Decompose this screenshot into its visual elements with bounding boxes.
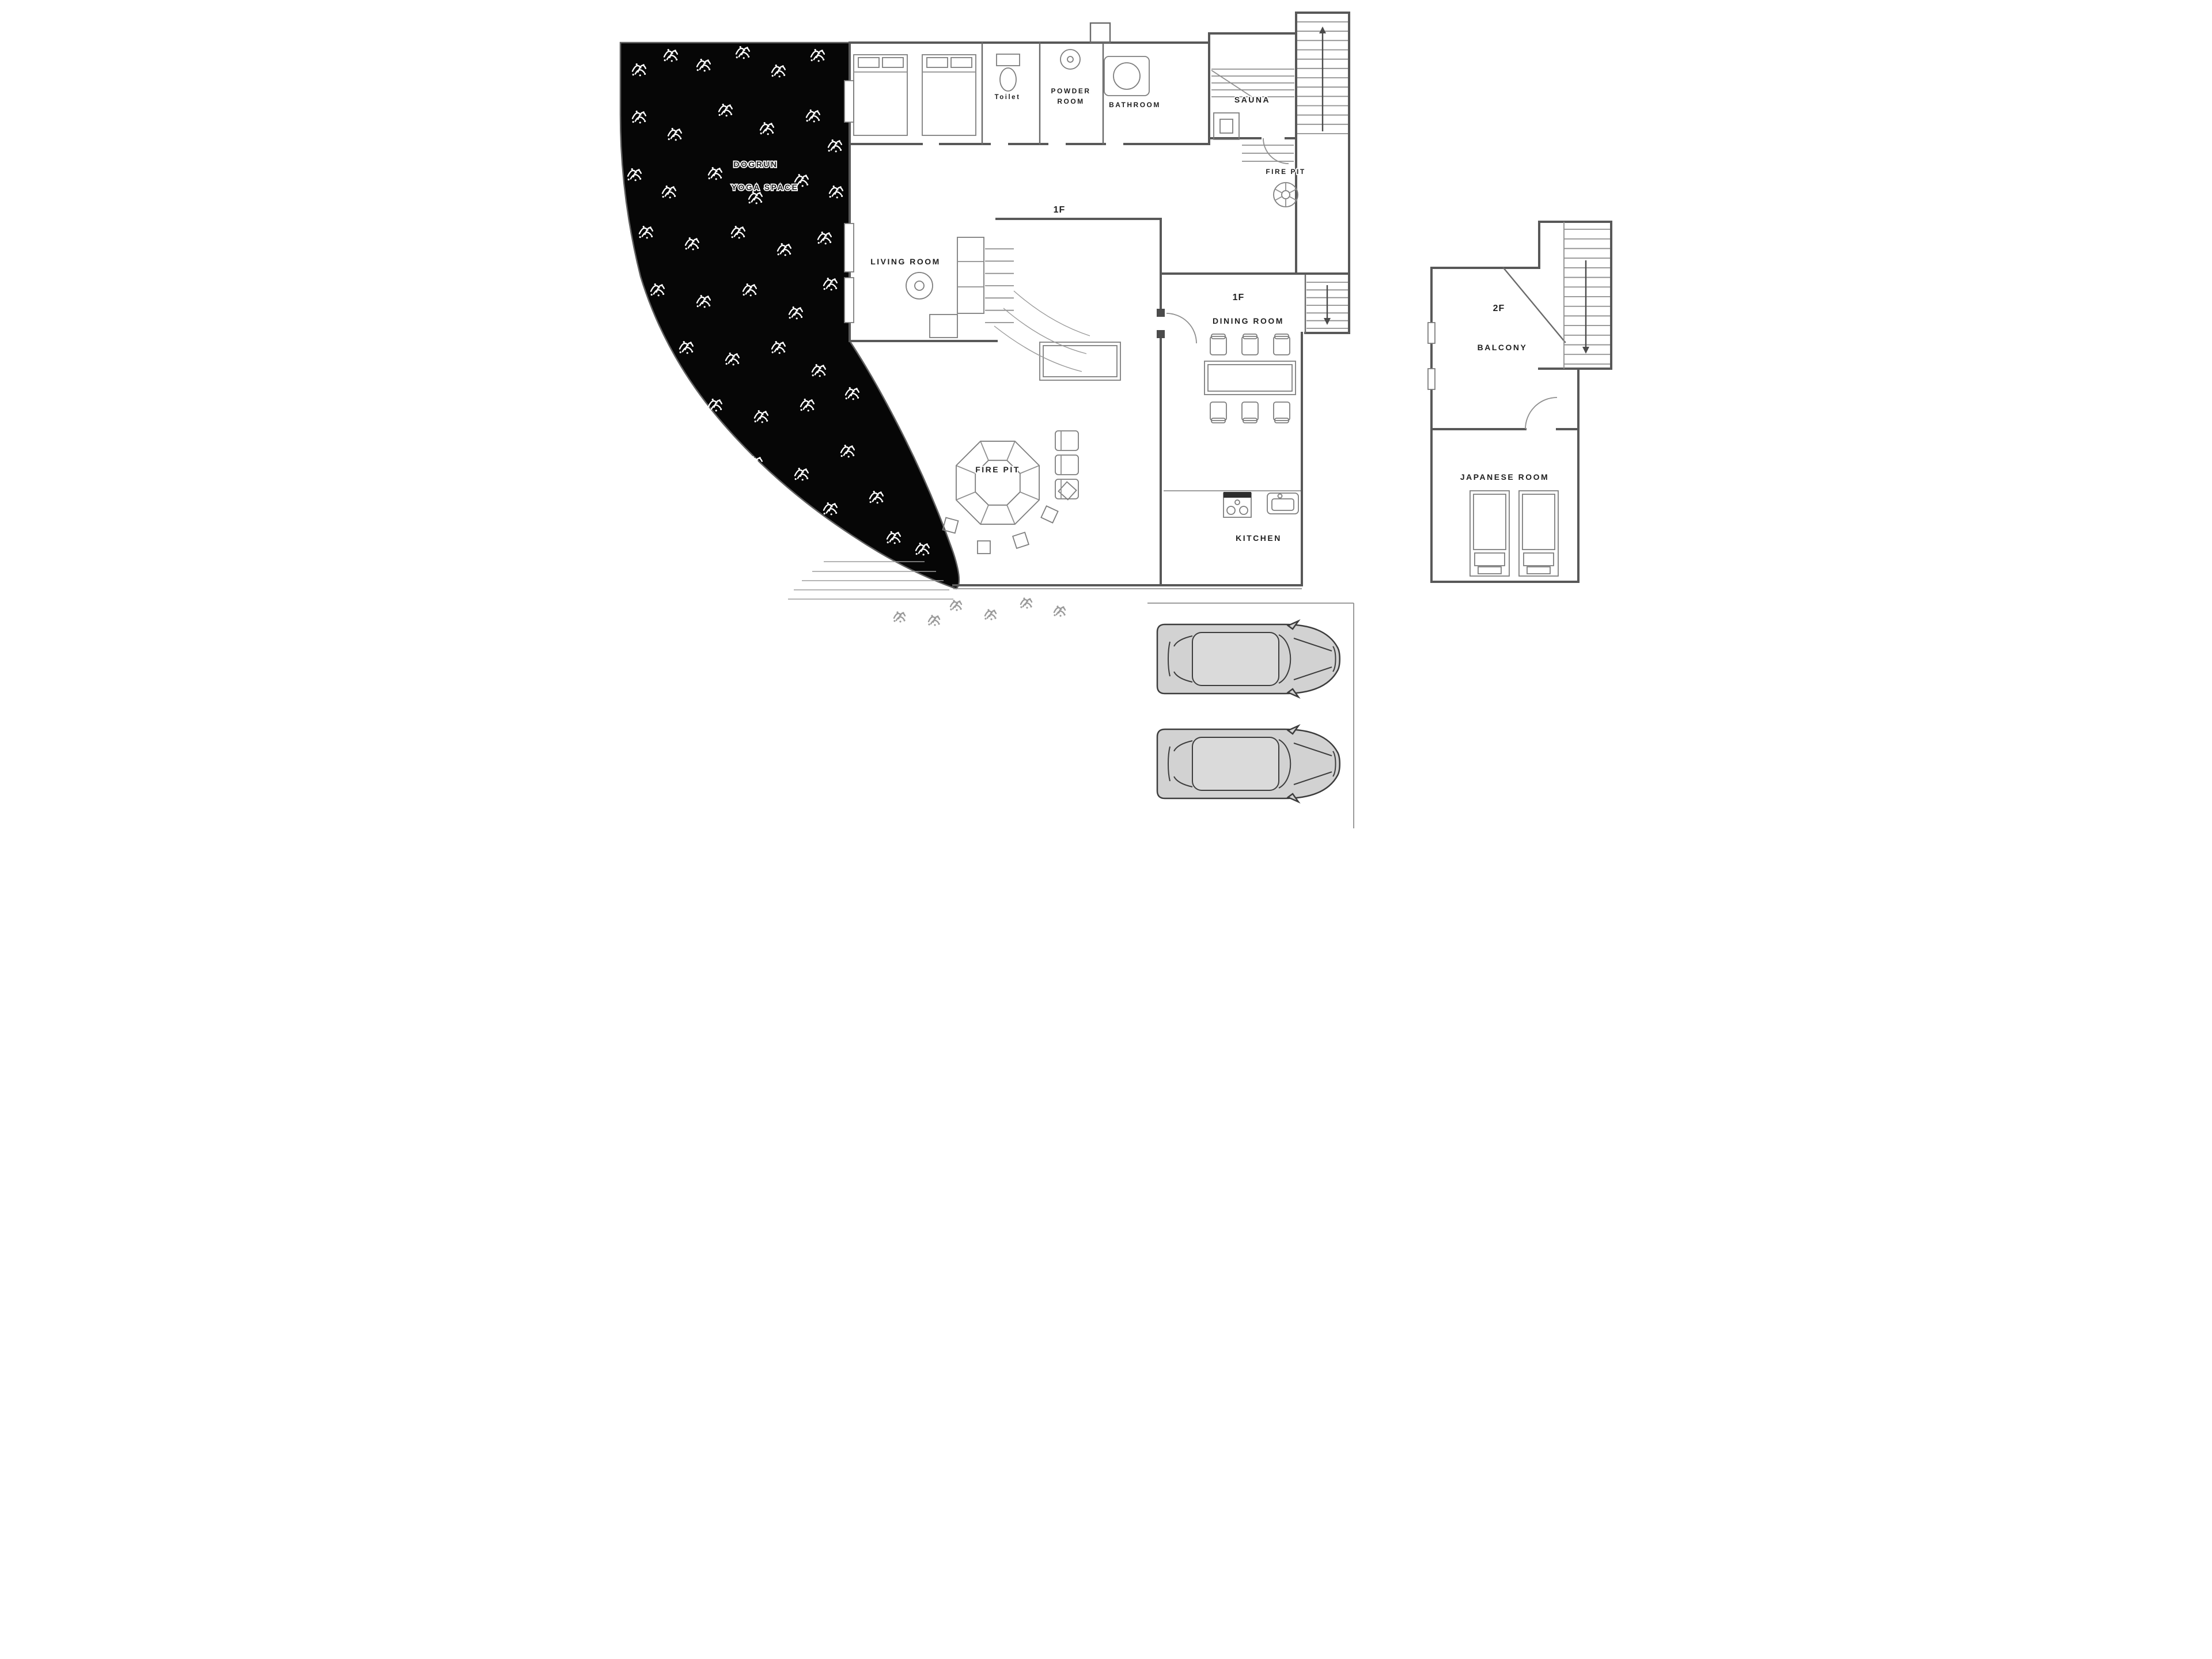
grass-dot — [747, 47, 748, 48]
grass-dot — [835, 150, 837, 152]
kitchen: KITCHEN — [1164, 491, 1301, 543]
grass-dot — [638, 169, 640, 171]
grass-dot — [743, 236, 745, 237]
sauna-door-arc — [1263, 138, 1289, 164]
fire-pit-spoke — [956, 492, 975, 500]
grass-dot — [821, 50, 823, 51]
grass-dot — [675, 50, 676, 51]
grass-dot — [796, 317, 798, 319]
fire-pit-outer — [956, 441, 1039, 524]
grass-dot — [729, 104, 731, 106]
grass-dot — [709, 69, 710, 70]
grass-dot — [899, 541, 900, 543]
dining-chairs — [1210, 334, 1290, 423]
stair-arrow-head — [1319, 26, 1326, 33]
fire-pit-spoke — [980, 505, 988, 524]
grass-tuft — [950, 602, 961, 609]
grass-dot — [782, 65, 784, 67]
grass-dot — [737, 362, 739, 364]
grass-dot — [743, 294, 745, 296]
grass-dot — [953, 600, 955, 601]
grass-dot — [760, 466, 762, 468]
futon-1 — [1470, 491, 1509, 576]
grass-dot — [857, 397, 859, 399]
powder-room-label-2: ROOM — [1057, 97, 1084, 105]
grass-dot — [835, 287, 837, 289]
grass-dot — [840, 186, 842, 188]
grass-dot — [730, 113, 732, 115]
grass-dot — [812, 374, 814, 376]
grass-dot — [931, 615, 933, 616]
grass-dot — [938, 623, 940, 624]
grass-dot — [736, 353, 738, 355]
grass-dot — [636, 63, 638, 65]
grass-dot — [729, 353, 731, 354]
grass-dot — [993, 609, 995, 611]
grass-tuft — [894, 613, 905, 620]
dining-chair — [1274, 402, 1290, 423]
grass-dot — [700, 295, 702, 297]
grass-dot — [853, 454, 854, 456]
stair-arrow-head — [1324, 318, 1331, 325]
grass-dot — [783, 351, 785, 353]
grass-dot — [736, 56, 738, 58]
grass-dot — [834, 278, 836, 280]
grass-dot — [712, 399, 714, 400]
deck-terrace: FIRE PIT — [943, 431, 1078, 554]
grass-dot — [720, 177, 722, 179]
grass-dot — [668, 49, 669, 51]
grass-dot — [719, 168, 721, 169]
grass-dot — [756, 202, 757, 204]
grass-dot — [806, 478, 808, 479]
grass-dot — [937, 615, 938, 617]
grass-dot — [707, 59, 709, 61]
grass-dot — [747, 283, 748, 285]
sauna-label: SAUNA — [1234, 95, 1270, 104]
grass-dot — [680, 351, 681, 353]
grass-dot — [1062, 606, 1064, 608]
grass-dot — [668, 138, 670, 140]
grass-dot — [749, 467, 751, 468]
grass-dot — [839, 140, 840, 142]
grass-dot — [672, 128, 673, 130]
grass-dot — [880, 491, 882, 493]
grass-dot — [662, 293, 664, 295]
grass-dot — [685, 248, 687, 249]
dining-chair — [1210, 334, 1226, 355]
powder-room-label-1: POWDER — [1051, 87, 1091, 95]
grass-dot — [828, 150, 830, 151]
grass-dot — [635, 179, 637, 181]
grass-dot — [798, 468, 800, 469]
grass-tuft — [985, 611, 996, 618]
grass-dot — [1063, 613, 1065, 615]
grass-dot — [802, 185, 804, 187]
grass-dot — [798, 174, 800, 176]
grass-dot — [772, 132, 774, 134]
grass-dot — [818, 119, 820, 121]
fire-pit-spoke — [956, 465, 975, 474]
grass-tuft — [1054, 608, 1065, 615]
grass-dot — [870, 501, 872, 503]
grass-dot — [662, 196, 664, 198]
grass-dot — [639, 122, 641, 123]
grass-dot — [800, 307, 801, 309]
grass-dot — [644, 120, 646, 122]
dog-run-area: DOGRUN YOGA SPACE — [620, 43, 1066, 626]
grass-dot — [805, 175, 807, 176]
grass-dot — [779, 75, 781, 77]
grass-dot — [664, 59, 666, 61]
grass-dot — [801, 409, 802, 411]
grass-dot — [674, 195, 676, 197]
grass-dot — [752, 456, 754, 458]
grass-dot — [1026, 607, 1028, 608]
sauna-stove — [1214, 113, 1239, 139]
grass-dot — [632, 74, 634, 75]
fire-pit-spoke — [1007, 441, 1015, 460]
grass-dot — [788, 244, 790, 245]
floor-marker-hall: 1F — [1054, 205, 1066, 215]
fire-pit-spoke — [980, 441, 988, 460]
fire-pit-deck-icon: FIRE PIT — [956, 441, 1039, 524]
grass-dot — [833, 185, 835, 187]
deck-stool — [978, 541, 990, 554]
grass-dot — [829, 196, 831, 198]
grass-dot — [715, 410, 717, 411]
grass-dot — [726, 115, 728, 116]
grass-dot — [775, 341, 777, 343]
futon-2 — [1519, 491, 1558, 576]
grass-dot — [719, 114, 721, 116]
grass-dot — [815, 49, 816, 51]
grass-dot — [899, 620, 901, 622]
grass-dot — [802, 479, 804, 480]
grass-dot — [646, 237, 648, 238]
grass-dot — [697, 247, 699, 249]
stairs-2f — [1564, 222, 1610, 369]
grass-dot — [771, 123, 772, 124]
balcony-door-arc — [1525, 397, 1557, 429]
grass-dot — [709, 409, 710, 411]
grass-dot — [823, 365, 824, 366]
bedroom-beds — [854, 55, 976, 135]
grass-dot — [1030, 605, 1032, 607]
grass-dot — [994, 617, 996, 619]
grass-dot — [960, 608, 961, 609]
grass-dot — [817, 110, 819, 112]
dining-chair — [1210, 402, 1226, 423]
grass-dot — [722, 104, 724, 105]
fire-pit-spoke — [1020, 465, 1039, 474]
grass-dot — [805, 468, 807, 470]
grass-dot — [821, 232, 823, 233]
grass-dot — [743, 57, 745, 59]
grass-tuft — [1021, 600, 1032, 607]
grass-dot — [691, 351, 693, 353]
dining-chair — [1242, 402, 1258, 423]
grass-dot — [812, 408, 814, 410]
grass-dot — [831, 289, 832, 290]
grass-dot — [775, 65, 777, 66]
fire-pit-terrace-label: FIRE PIT — [1266, 168, 1305, 176]
living-room: LIVING ROOM — [870, 237, 1014, 338]
grass-dot — [848, 456, 850, 457]
grass-tuft — [929, 617, 940, 624]
grass-dot — [755, 293, 756, 295]
grass-dot — [834, 503, 836, 505]
living-steps — [985, 249, 1014, 323]
grass-dot — [846, 397, 847, 399]
grass-dot — [772, 75, 774, 77]
grass-dot — [639, 178, 641, 180]
grass-dot — [671, 60, 673, 62]
grass-dot — [785, 254, 786, 256]
grass-dot — [916, 553, 918, 555]
grass-dot — [829, 241, 831, 243]
grass-dot — [836, 196, 838, 198]
grass-dot — [697, 69, 699, 71]
grass-dot — [844, 445, 846, 446]
toilet-tank — [997, 54, 1020, 66]
grass-dot — [712, 167, 714, 169]
grass-dot — [666, 185, 668, 187]
grass-dot — [676, 59, 677, 60]
grass-dot — [697, 305, 699, 307]
grass-dot — [873, 491, 875, 493]
grass-dot — [808, 410, 809, 411]
grass-dot — [934, 624, 935, 626]
grass-dot — [738, 237, 740, 238]
grass-dot — [783, 74, 785, 76]
grass-dot — [643, 64, 645, 66]
grass-dot — [853, 398, 854, 400]
grass-dot — [811, 399, 813, 401]
deck-stool — [1041, 506, 1058, 522]
grass-dot — [825, 243, 827, 244]
grass-dot — [683, 341, 685, 343]
garden-step-arc — [1014, 291, 1090, 336]
grass-dot — [759, 192, 761, 194]
grass-dot — [643, 111, 645, 113]
grass-dot — [651, 236, 653, 237]
grass-dot — [840, 149, 842, 151]
grass-dot — [760, 201, 762, 203]
balcony-label: BALCONY — [1478, 343, 1528, 352]
grass-dot — [628, 179, 630, 180]
walls-2f — [1428, 222, 1611, 582]
grass-dot — [984, 618, 986, 619]
grass-dot — [650, 226, 652, 228]
grass-dot — [919, 543, 921, 544]
grass-dot — [758, 410, 760, 412]
grass-dot — [856, 388, 858, 389]
grass-dot — [827, 502, 829, 504]
grass-dot — [687, 352, 688, 354]
floor-plan-canvas: DOGRUN YOGA SPACE — [553, 0, 1659, 829]
deck-stools — [943, 482, 1077, 554]
grass-dot — [841, 195, 843, 197]
grass-dot — [760, 132, 762, 134]
grass-dot — [902, 612, 904, 613]
dog-run-ground — [620, 43, 959, 589]
grass-dot — [849, 387, 851, 389]
grass-dot — [816, 364, 817, 366]
living-table — [906, 272, 933, 299]
grass-dot — [750, 294, 752, 296]
grass-dot — [828, 232, 830, 234]
grass-dot — [823, 59, 824, 60]
grass-dot — [832, 139, 834, 141]
grass-dot — [811, 59, 813, 61]
fire-pit-terrace: FIRE PIT — [1266, 168, 1305, 207]
grass-dot — [772, 351, 774, 353]
grass-dot — [1023, 597, 1025, 599]
grass-dot — [707, 296, 709, 297]
grass-dot — [765, 411, 767, 412]
parking-area — [1147, 603, 1354, 828]
grass-dot — [789, 253, 791, 255]
kitchen-label: KITCHEN — [1236, 533, 1282, 543]
garden-step-arcs — [994, 291, 1090, 372]
grass-dot — [923, 554, 925, 555]
grass-dot — [669, 196, 671, 198]
fire-pit-spoke — [1007, 505, 1015, 524]
sofa — [957, 237, 984, 313]
grass-dot — [689, 237, 691, 239]
grass-dot — [700, 59, 702, 60]
grass-dot — [719, 399, 721, 401]
grass-dot — [779, 352, 781, 354]
grass-dot — [1020, 606, 1022, 608]
japanese-room: JAPANESE ROOM — [1460, 472, 1558, 576]
grass-dot — [881, 501, 883, 502]
grass-dot — [851, 445, 853, 447]
grass-dot — [903, 619, 905, 621]
fire-pit-spoke — [1020, 492, 1039, 500]
floor-plan-page: DOGRUN YOGA SPACE — [553, 0, 1659, 829]
entrance — [994, 291, 1196, 380]
grass-dot — [806, 184, 808, 185]
grass-dot — [764, 122, 766, 124]
grass-dot — [824, 513, 825, 514]
grass-dot — [810, 109, 812, 111]
grass-dot — [704, 70, 706, 71]
grass-dot — [877, 502, 878, 503]
grass-dot — [709, 305, 710, 306]
grass-dot — [632, 121, 634, 123]
grass-dot — [897, 532, 899, 533]
floor-marker-dining: 1F — [1233, 293, 1245, 302]
grass-dot — [735, 226, 737, 228]
grass-dot — [692, 248, 694, 250]
second-floor-plan: 2F BALCONY JAPANESE ROOM — [1428, 222, 1611, 582]
grass-dot — [753, 284, 755, 286]
grass-dot — [990, 618, 992, 620]
grass-dot — [835, 512, 837, 514]
yoga-space-label: YOGA SPACE — [732, 183, 799, 192]
grass-dot — [696, 238, 698, 240]
grass-dot — [831, 513, 832, 515]
dining-table — [1205, 361, 1296, 395]
grass-dot — [726, 363, 728, 365]
grass-dot — [709, 177, 710, 179]
fire-pit-small-icon — [1274, 183, 1298, 207]
grass-dot — [631, 168, 633, 170]
grass-dot — [749, 202, 751, 203]
grass-dot — [733, 363, 734, 365]
grass-dot — [704, 306, 706, 308]
bathroom: BATHROOM — [1104, 56, 1161, 109]
grass-dot — [661, 284, 663, 286]
garden-step-arc — [1003, 308, 1086, 354]
stairs-1f — [1306, 282, 1348, 328]
grass-dot — [927, 552, 929, 554]
grass-dot — [766, 420, 768, 422]
grass-dot — [841, 455, 843, 457]
powder-room: POWDER ROOM — [1051, 50, 1091, 105]
grass-dot — [679, 128, 680, 130]
grass-dot — [740, 46, 741, 48]
fire-pit-deck-label: FIRE PIT — [975, 465, 1020, 474]
vent-box — [1090, 23, 1110, 43]
grass-dot — [824, 374, 825, 376]
toilet-bowl — [1000, 68, 1016, 91]
grass-dot — [755, 421, 756, 422]
grass-dot — [644, 73, 646, 75]
grass-dot — [813, 120, 815, 122]
grass-dot — [795, 478, 797, 480]
entrance-door-arc — [1166, 313, 1196, 343]
grass-dot — [793, 306, 794, 308]
stairs-upper-right — [1297, 22, 1348, 134]
grass-dot — [801, 316, 802, 318]
lounge-chair — [1055, 431, 1078, 450]
grass-dot — [654, 283, 656, 285]
grass-dot — [690, 342, 692, 343]
floor-marker-2f: 2F — [1493, 304, 1505, 313]
grass-dot — [959, 600, 960, 602]
grass-dot — [818, 242, 820, 244]
grass-dot — [651, 294, 653, 296]
dining-chair — [1242, 334, 1258, 355]
car-2 — [1157, 726, 1340, 802]
grass-dot — [720, 408, 722, 410]
grass-dot — [658, 294, 660, 296]
dining-room: 1F DINING ROOM — [1205, 282, 1348, 423]
grass-dot — [742, 226, 744, 228]
living-room-label: LIVING ROOM — [870, 257, 941, 266]
lounge-chair — [1055, 455, 1078, 475]
grass-dot — [1029, 598, 1031, 600]
grass-dot — [781, 243, 783, 245]
grass-dot — [732, 236, 733, 238]
grass-dot — [987, 609, 989, 611]
sauna-bench — [1211, 69, 1294, 97]
grass-dot — [1054, 614, 1055, 616]
grass-dot — [896, 611, 898, 613]
dining-room-label: DINING ROOM — [1213, 316, 1284, 325]
grass-dot — [894, 542, 896, 544]
grass-dot — [806, 120, 808, 122]
ottoman — [930, 315, 957, 338]
grass-dot — [819, 375, 821, 377]
grass-dot — [782, 342, 784, 343]
sauna-room: SAUNA — [1211, 69, 1294, 164]
grass-dot — [778, 253, 779, 255]
dogrun-label: DOGRUN — [733, 160, 778, 169]
